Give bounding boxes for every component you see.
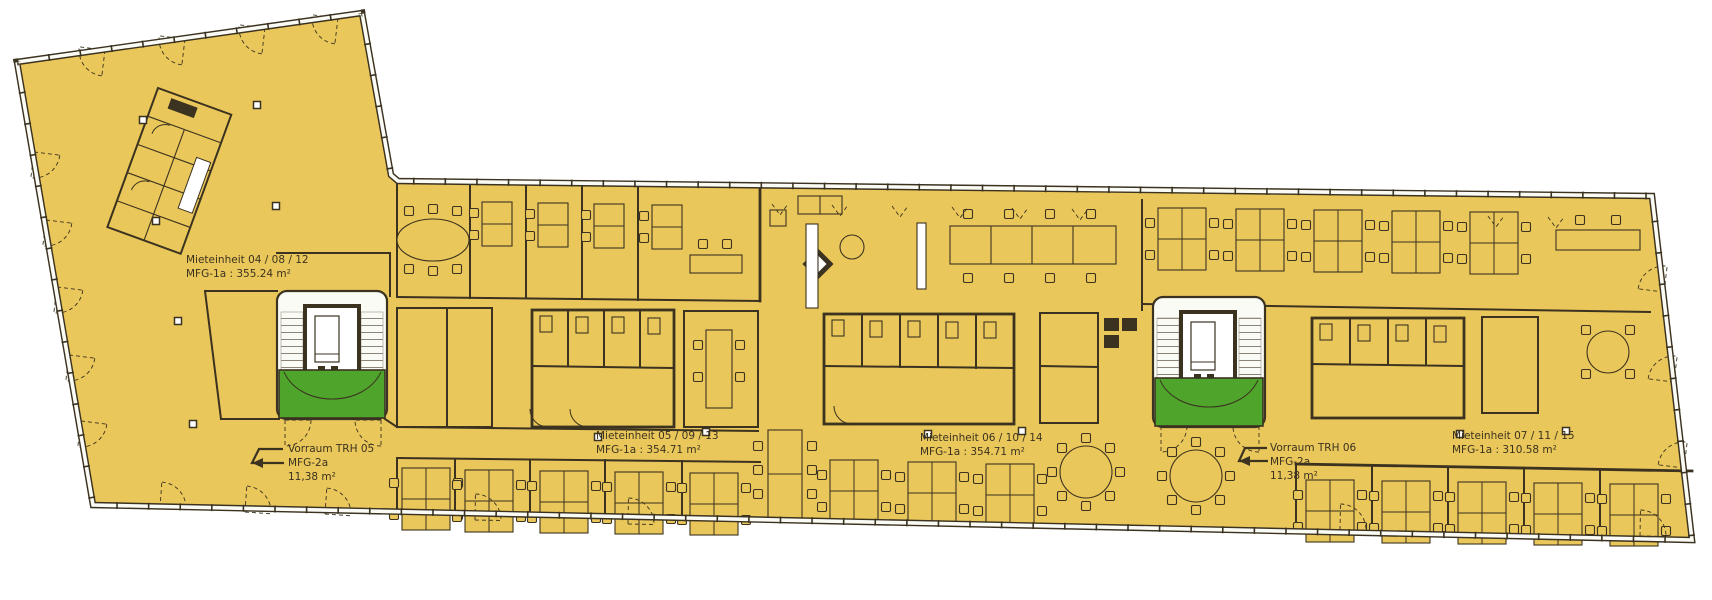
unit-label-04-08-12: Mieteinheit 04 / 08 / 12 MFG-1a : 355.24…	[186, 254, 309, 282]
desk	[690, 255, 742, 273]
elevator-car-06	[1191, 322, 1215, 370]
floorplan-drawing	[0, 0, 1712, 600]
unit-name: Mieteinheit 04 / 08 / 12	[186, 254, 309, 268]
wc-block-3	[1312, 318, 1464, 418]
unit-label-05-09-13: Mieteinheit 05 / 09 / 13 MFG-1a : 354.71…	[596, 430, 719, 458]
vorraum-label-trh05: Vorraum TRH 05 MFG-2a 11,38 m²	[288, 443, 374, 485]
vorraum-name: Vorraum TRH 06	[1270, 442, 1356, 456]
vorraum-area: 11,38 m²	[288, 471, 374, 485]
desk	[1556, 230, 1640, 250]
unit-label-06-10-14: Mieteinheit 06 / 10 / 14 MFG-1a : 354.71…	[920, 432, 1043, 460]
vorraum-green-05	[279, 370, 385, 418]
vorraum-area: 11,38 m²	[1270, 470, 1356, 484]
unit-label-07-11-15: Mieteinheit 07 / 11 / 15 MFG-1a : 310.58…	[1452, 430, 1575, 458]
elevator-car-05	[315, 316, 339, 362]
vorraum-label-trh06: Vorraum TRH 06 MFG-2a 11,38 m²	[1270, 442, 1356, 484]
vorraum-name: Vorraum TRH 05	[288, 443, 374, 457]
core-room	[397, 308, 492, 427]
unit-area: MFG-1a : 355.24 m²	[186, 268, 309, 282]
vorraum-green-06	[1155, 378, 1263, 426]
unit-name: Mieteinheit 06 / 10 / 14	[920, 432, 1043, 446]
vorraum-type: MFG-2a	[288, 457, 374, 471]
core-meeting-room	[684, 311, 758, 427]
unit-area: MFG-1a : 354.71 m²	[920, 446, 1043, 460]
unit-area: MFG-1a : 310.58 m²	[1452, 444, 1575, 458]
vorraum-type: MFG-2a	[1270, 456, 1356, 470]
unit-name: Mieteinheit 07 / 11 / 15	[1452, 430, 1575, 444]
round-table	[1582, 326, 1635, 379]
core-room	[1482, 317, 1538, 413]
wc-block-1	[530, 310, 674, 427]
wc-block-2	[824, 314, 1014, 424]
unit-name: Mieteinheit 05 / 09 / 13	[596, 430, 719, 444]
unit-area: MFG-1a : 354.71 m²	[596, 444, 719, 458]
floorplan-canvas: Mieteinheit 04 / 08 / 12 MFG-1a : 355.24…	[0, 0, 1712, 600]
core-room	[1040, 313, 1098, 423]
core-band-rooms	[397, 308, 1538, 427]
